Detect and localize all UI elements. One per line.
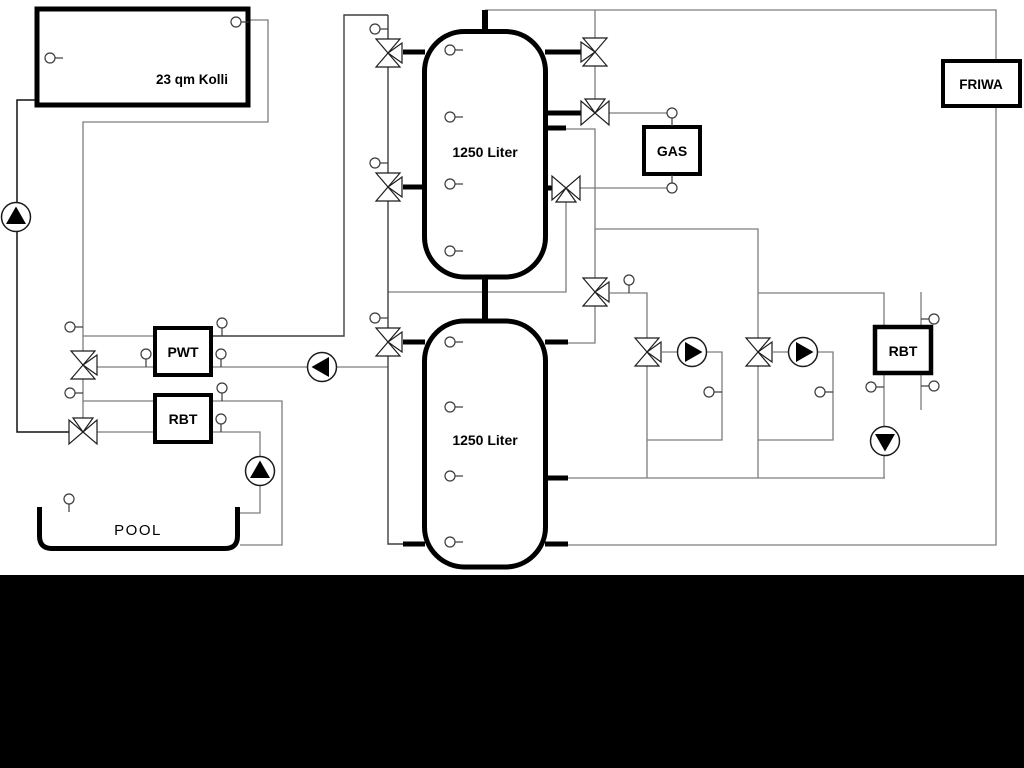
- rbt-left-label: RBT: [169, 411, 198, 427]
- collector-label: 23 qm Kolli: [156, 72, 228, 87]
- pump-rbt-circuit: [871, 427, 900, 456]
- gas-label: GAS: [657, 143, 687, 159]
- schematic-stage: 23 qm Kolli 1250 Liter 1250 Liter PWT RB…: [0, 0, 1024, 768]
- tank2-label: 1250 Liter: [452, 432, 518, 448]
- solar-collector-box: [37, 9, 248, 105]
- heating-schematic: 23 qm Kolli 1250 Liter 1250 Liter PWT RB…: [0, 0, 1024, 768]
- pool-label: POOL: [114, 522, 162, 539]
- pwt-label: PWT: [167, 344, 199, 360]
- rbt-right-label: RBT: [889, 343, 918, 359]
- pump-storage-charge: [308, 353, 337, 382]
- pump-solar: [2, 203, 31, 232]
- tank1-label: 1250 Liter: [452, 144, 518, 160]
- pump-pool: [246, 457, 275, 486]
- pump-circuit2: [789, 338, 818, 367]
- bottom-black-band: [0, 575, 1024, 768]
- friwa-label: FRIWA: [959, 77, 1003, 92]
- pump-circuit1: [678, 338, 707, 367]
